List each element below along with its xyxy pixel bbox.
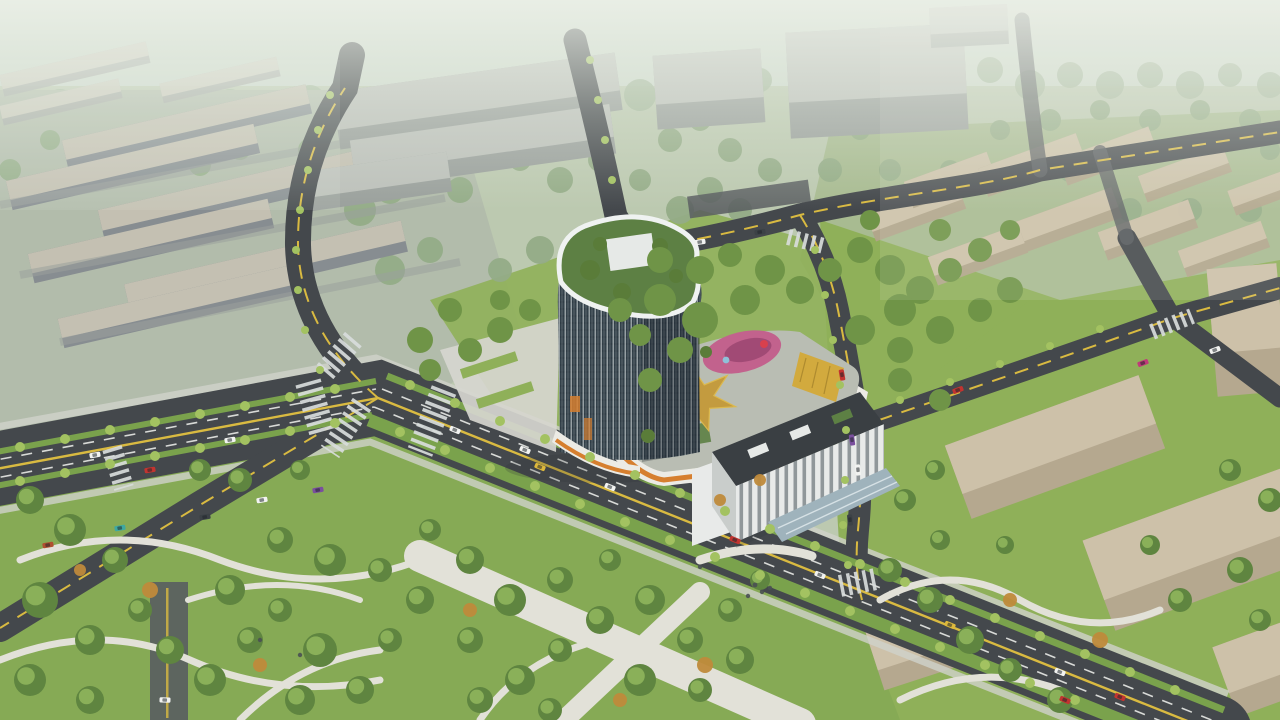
tree <box>1092 632 1108 648</box>
tree <box>935 642 945 652</box>
tree <box>786 276 814 304</box>
roof-play-dot <box>723 357 730 364</box>
tree-highlight <box>78 628 95 645</box>
tree <box>896 396 904 404</box>
tree <box>395 427 405 437</box>
tree <box>15 442 25 452</box>
tree <box>700 346 712 358</box>
tree <box>665 535 675 545</box>
tree-highlight <box>540 700 553 713</box>
tree-highlight <box>292 462 303 473</box>
car <box>847 514 853 525</box>
tree <box>1125 667 1135 677</box>
tower-orange-accent <box>570 396 580 412</box>
tree-highlight <box>927 462 938 473</box>
haze-overlay-left <box>0 60 340 210</box>
tree <box>330 384 340 394</box>
tree <box>195 409 205 419</box>
tree <box>608 298 632 322</box>
tree <box>900 577 910 587</box>
tree <box>440 445 450 455</box>
tree <box>540 434 550 444</box>
tree <box>450 398 460 408</box>
tree <box>647 247 673 273</box>
tree <box>1003 593 1017 607</box>
tree <box>15 476 25 486</box>
tree <box>811 246 819 254</box>
tree <box>682 302 718 338</box>
tree <box>240 401 250 411</box>
tree-highlight <box>690 680 703 693</box>
tree <box>495 416 505 426</box>
tree <box>1046 342 1054 350</box>
tree <box>718 243 742 267</box>
tree-highlight <box>470 690 484 704</box>
tree <box>240 435 250 445</box>
tree <box>754 474 766 486</box>
tree-highlight <box>1230 560 1244 574</box>
tree <box>195 443 205 453</box>
tree <box>620 517 630 527</box>
tree-highlight <box>1000 660 1013 673</box>
tree-highlight <box>409 589 424 604</box>
tree <box>968 298 992 322</box>
tree <box>285 392 295 402</box>
tree <box>644 284 676 316</box>
tree-highlight <box>550 570 564 584</box>
tree-highlight <box>729 649 744 664</box>
tree <box>630 470 640 480</box>
tree-highlight <box>270 600 283 613</box>
tree-highlight <box>370 560 383 573</box>
tree <box>845 315 875 345</box>
car-windshield <box>850 437 854 442</box>
tree <box>519 299 541 321</box>
tree-highlight <box>57 517 75 535</box>
tree <box>810 541 820 551</box>
tree-highlight <box>880 560 893 573</box>
tree <box>1080 649 1090 659</box>
tree-highlight <box>589 609 604 624</box>
tree <box>926 316 954 344</box>
tree-highlight <box>26 586 46 606</box>
roof-play-dot <box>760 340 768 348</box>
tree-highlight <box>550 640 563 653</box>
tree <box>845 606 855 616</box>
person-dot <box>746 594 750 598</box>
tree <box>405 380 415 390</box>
tree <box>629 324 651 346</box>
car-windshield <box>856 467 860 472</box>
tree <box>585 452 595 462</box>
tree <box>60 434 70 444</box>
tree <box>1025 678 1035 688</box>
tree-highlight <box>1142 537 1153 548</box>
tree-highlight <box>627 667 645 685</box>
tree <box>142 582 158 598</box>
tree <box>836 381 844 389</box>
tree-highlight <box>270 530 284 544</box>
tree <box>841 476 849 484</box>
tree <box>675 488 685 498</box>
tree <box>105 459 115 469</box>
tree <box>829 336 837 344</box>
tree <box>150 451 160 461</box>
tree-highlight <box>240 630 254 644</box>
tree <box>755 570 765 580</box>
tree <box>686 256 714 284</box>
tree <box>714 494 726 506</box>
tree <box>996 360 1004 368</box>
tree <box>890 624 900 634</box>
tree <box>105 425 115 435</box>
tree <box>530 481 540 491</box>
tree <box>292 246 300 254</box>
person-dot <box>768 586 772 590</box>
tree-highlight <box>720 600 733 613</box>
tree <box>1035 631 1045 641</box>
tree <box>74 564 86 576</box>
tree-highlight <box>459 549 474 564</box>
tree <box>458 338 482 362</box>
architectural-rendering <box>0 0 1280 720</box>
tree-highlight <box>932 532 943 543</box>
tree <box>839 521 847 529</box>
car-windshield <box>757 230 762 234</box>
tree-highlight <box>460 630 474 644</box>
tree <box>490 290 510 310</box>
tree <box>720 506 730 516</box>
tree-highlight <box>17 667 35 685</box>
tree-highlight <box>306 636 325 655</box>
tree <box>844 561 852 569</box>
tree-highlight <box>349 679 364 694</box>
tree <box>488 258 512 282</box>
tree <box>285 426 295 436</box>
tree <box>929 389 951 411</box>
haze-overlay-right <box>880 0 1280 300</box>
tree-highlight <box>1251 611 1263 623</box>
tree-highlight <box>19 489 34 504</box>
tree <box>593 237 607 251</box>
tree-highlight <box>159 639 174 654</box>
tree <box>980 660 990 670</box>
tree-highlight <box>1221 461 1233 473</box>
tree-highlight <box>380 630 393 643</box>
person-dot <box>753 583 758 588</box>
car-windshield <box>162 698 167 702</box>
tree <box>821 291 829 299</box>
tree <box>316 366 324 374</box>
tree <box>301 326 309 334</box>
tree-highlight <box>79 689 94 704</box>
tree-highlight <box>920 590 934 604</box>
tree <box>526 236 554 264</box>
tree <box>847 237 873 263</box>
tree <box>887 337 913 363</box>
tree <box>438 298 462 322</box>
tree <box>638 368 662 392</box>
tree <box>755 255 785 285</box>
tree <box>294 286 302 294</box>
tree-highlight <box>230 470 243 483</box>
tree-highlight <box>680 630 694 644</box>
tree <box>417 237 443 263</box>
tree <box>818 258 842 282</box>
tree <box>1170 685 1180 695</box>
tree <box>697 657 713 673</box>
tree <box>407 327 433 353</box>
tree <box>613 693 627 707</box>
tree-highlight <box>105 550 119 564</box>
tree-highlight <box>1260 490 1273 503</box>
person-dot <box>698 565 702 569</box>
tree <box>855 559 865 569</box>
tree <box>253 658 267 672</box>
tree-highlight <box>197 667 215 685</box>
tree <box>575 499 585 509</box>
tree-highlight <box>959 629 974 644</box>
person-dot <box>258 638 262 642</box>
tree-highlight <box>317 547 335 565</box>
tree-highlight <box>218 578 235 595</box>
tree <box>800 588 810 598</box>
tree <box>669 269 683 283</box>
car-windshield <box>697 240 702 244</box>
tree-highlight <box>191 461 203 473</box>
tree <box>641 429 655 443</box>
car <box>159 697 170 703</box>
tree <box>888 368 912 392</box>
tree <box>730 285 760 315</box>
tree-highlight <box>288 688 305 705</box>
tree-highlight <box>1170 590 1183 603</box>
tree-highlight <box>638 588 655 605</box>
tree-highlight <box>421 521 433 533</box>
person-dot <box>760 590 764 594</box>
tree <box>1096 325 1104 333</box>
tree <box>150 417 160 427</box>
tree <box>485 463 495 473</box>
tree <box>990 613 1000 623</box>
tree <box>765 524 775 534</box>
tree <box>60 468 70 478</box>
tree <box>710 552 720 562</box>
car-windshield <box>848 517 852 522</box>
tree <box>842 426 850 434</box>
tree-highlight <box>601 551 613 563</box>
car <box>855 464 861 475</box>
tree-highlight <box>130 600 143 613</box>
tree <box>667 337 693 363</box>
tree <box>330 418 340 428</box>
scene-canvas <box>0 0 1280 720</box>
tree-highlight <box>497 587 515 605</box>
tree-highlight <box>998 538 1008 548</box>
tree <box>487 317 513 343</box>
tree <box>945 595 955 605</box>
tree <box>860 210 880 230</box>
tree <box>580 260 600 280</box>
person-dot <box>298 653 302 657</box>
tree <box>946 378 954 386</box>
tree <box>1070 695 1080 705</box>
tree <box>463 603 477 617</box>
tree <box>419 359 441 381</box>
tree-highlight <box>508 668 525 685</box>
tower-orange-accent <box>584 418 592 440</box>
tree-highlight <box>896 491 908 503</box>
